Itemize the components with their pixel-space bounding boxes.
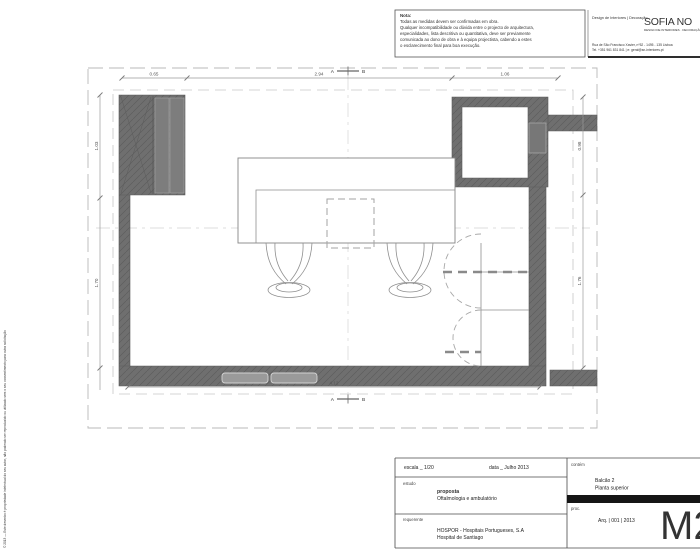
title-block: escala _ 1/20 data _ Julho 2013 estudo p… [395,458,700,548]
note-line: o esclarecimento final para boa execução… [400,43,481,48]
note-line: comunicada ao dono de obra e à equipa pr… [400,37,532,42]
section-marker-top: A B [331,67,365,76]
chair-side [387,243,407,284]
wall-unit [222,373,268,383]
dim-label: 4.12 [330,381,339,386]
header-tagline: Design de Interiores | Decoração [592,16,647,20]
chair-side [292,243,312,284]
chair-side-inner [275,243,288,281]
titleblock-black-bar [567,495,700,503]
header-address-2: Tel. +351 961 831 841 | e: geral@sn-inte… [592,48,664,52]
dimension-left: 1.03 1.70 [94,93,103,391]
section-label-a: A [331,69,335,75]
counter-top-outline [238,158,455,243]
note-line: Qualquer incompatibilidade ou dúvida ent… [400,25,534,30]
chair-base [268,283,310,298]
wall-unit [271,373,317,383]
chair-side [413,243,433,284]
chair-side-inner [411,243,424,281]
study-label: estudo [403,481,416,486]
proc-label: proc. [571,506,580,511]
contains-line2: Planta superior [595,486,629,492]
logo-text: SOFIA NO [644,16,692,28]
client-label: requerente [403,517,424,522]
chair-base [389,283,431,298]
sheet-code: M2 [660,504,700,548]
chair-side-inner [396,243,409,281]
chair-base-inner [397,283,423,292]
dim-label: 1.70 [94,278,99,287]
chair-base-inner [276,283,302,292]
counter [238,158,455,243]
duct-box [529,123,546,153]
chair-right [387,243,433,298]
doors [443,234,529,366]
note-line: Todas as medidas devem ser confirmadas e… [400,19,499,24]
section-label-b: B [362,397,365,403]
cabinet-door-left [155,98,169,193]
cabinet-door-right [170,98,184,193]
chair-side [266,243,286,284]
section-label-a: A [331,397,335,403]
client-name: HOSPOR - Hospitais Portugueses, S.A [437,528,525,534]
dim-label: 0.65 [150,72,159,77]
floor-plan: 0.65 2.94 1.06 1.03 1.70 0.98 1.76 4.12 [88,67,597,429]
logo-subtext: DESIGN DE INTERIORES · DECORAÇÃO [644,27,700,32]
contains-line1: Balcão 2 [595,478,615,484]
chair-side-inner [290,243,303,281]
side-copyright-note: © 2013 — Este desenho é propriedade inte… [3,330,7,548]
header-address-1: Rua de São Francisco Xavier, nº52 - 1495… [592,43,673,47]
drawing-sheet: 0.65 2.94 1.06 1.03 1.70 0.98 1.76 4.12 [0,0,700,550]
dimension-top: 0.65 2.94 1.06 [120,72,561,81]
contains-label: contém [571,462,585,467]
section-marker-bottom: A B [331,395,365,404]
dim-label: 2.94 [315,72,324,77]
header-block: Design de Interiores | Decoração SOFIA N… [588,10,700,57]
scale-value: escala _ 1/20 [404,465,434,471]
dim-label: 1.76 [577,276,582,285]
dim-label: 1.06 [501,72,510,77]
dim-label: 1.03 [94,141,99,150]
note-title: Nota: [400,13,412,18]
section-label-b: B [362,69,365,75]
dimension-right: 0.98 1.76 [577,95,586,371]
door-swing-arc-lower [453,310,481,366]
study-title: proposta [437,489,459,495]
note-box: Nota: Todas as medidas devem ser confirm… [395,10,585,57]
proc-value: Arq. | 001 | 2013 [598,518,635,524]
dim-label: 0.98 [577,141,582,150]
chair-left [266,243,312,298]
study-subtitle: Oftalmologia e ambulatório [437,496,497,502]
note-line: especialidades, lista descritiva ou quan… [400,31,531,36]
date-value: data _ Julho 2013 [489,465,529,471]
client-site: Hospital de Santiago [437,535,483,541]
